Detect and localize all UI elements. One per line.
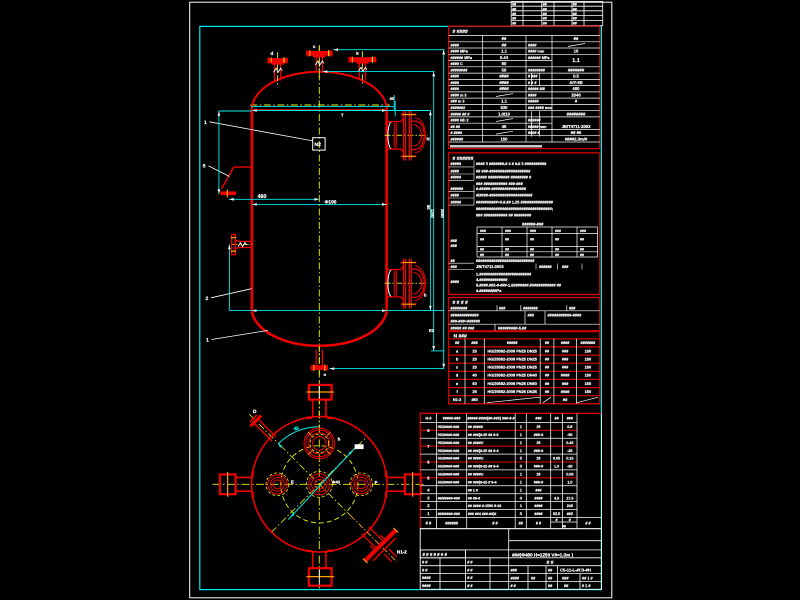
svg-text:## ####U: ## ####U [468,473,484,477]
svg-text:# # # # # # #: # # # # # # # [423,552,448,557]
svg-text:0.45: 0.45 [566,441,573,445]
svg-text:# #: # # [422,567,428,572]
svg-text:45: 45 [294,426,300,432]
svg-text:o: o [324,372,327,377]
svg-text:###: ### [511,569,518,573]
svg-text:0.15: 0.15 [566,457,573,461]
svg-text:##: ## [573,12,577,16]
svg-text:## #### #-1580 9-18: ## #### #-1580 9-18 [468,504,501,508]
svg-text:##: ## [543,7,547,11]
svg-text:##### ## #: ##### ## # [451,112,471,116]
svg-text:925: 925 [501,105,509,110]
svg-text:HG/####-###: HG/####-### [438,473,460,477]
svg-text:##: ## [555,253,559,257]
svg-text:###: ### [555,229,561,233]
svg-text:######: ###### [451,187,465,191]
svg-text:###: ### [451,239,458,243]
svg-text:50: 50 [502,67,507,72]
svg-text:### ########### ## ########: ### ########### ## ######## [476,213,532,218]
svg-text:##############################: ########################################… [450,145,542,149]
svg-text:######-###: ######-### [522,222,544,227]
svg-text:#######: ####### [568,67,585,72]
svg-text:HG/####-###: HG/####-### [438,480,460,484]
svg-text:#### MPa: #### MPa [451,50,469,54]
svg-text:####: #### [422,583,431,588]
svg-text:###: ### [451,265,458,269]
svg-text:d: d [271,51,274,56]
svg-text:N1-2: N1-2 [453,397,462,402]
svg-text:##: ## [580,253,584,257]
svg-text:1.########################: 1.######################## [476,272,532,277]
svg-text:#: # [556,518,558,522]
svg-text:###: ### [569,307,576,311]
svg-text:###-#: ###-# [534,449,543,453]
svg-text:####: #### [451,193,460,197]
svg-text:1.0: 1.0 [567,480,572,484]
svg-text:150: 150 [501,136,509,141]
svg-text:# #: # # [467,567,473,572]
svg-text:## ##: ## ## [451,125,461,129]
svg-text:# #: # # [467,559,473,564]
svg-text:#### 3 #######.# 4 # #.# 3 ###: #### 3 #######.# 4 # #.# 3 ########## [476,161,547,166]
svg-text:# ####: # #### [451,131,464,135]
svg-text:##: ## [505,238,509,242]
svg-text:JB/T4711-2003: JB/T4711-2003 [476,264,504,269]
svg-text:1200: 1200 [430,209,435,219]
svg-text:## #####: ## ##### [468,425,483,429]
svg-text:## ###[#-25 ## 9-6: ## ###[#-25 ## 9-6 [468,433,499,437]
svg-text:C5-11-L-#C3-#H: C5-11-L-#C3-#H [560,568,591,573]
svg-text:# # # #: # # # # [453,300,469,306]
svg-text:##: ## [480,248,484,252]
svg-text:##: ## [580,238,584,242]
svg-text:###: ### [562,365,569,370]
svg-text:#####: ##### [451,200,462,204]
svg-text:# #: # # [547,560,554,566]
svg-text:HG/20592-2009 PN25 DN25: HG/20592-2009 PN25 DN25 [487,348,537,353]
svg-text:460: 460 [258,194,267,200]
svg-text:150: 150 [585,365,592,370]
svg-text:####: #### [534,504,542,508]
svg-text:####: #### [422,575,431,580]
svg-text:##: ## [573,3,577,7]
svg-text:HG/####-###: HG/####-### [438,425,460,429]
svg-text:### ##4 ###-##)#: ### ##4 ###-##)# [468,512,496,516]
svg-text:###-###+######: ###-###+###### [451,319,481,324]
svg-text:## ####U: ## ####U [468,457,484,461]
svg-text:#### mm: #### mm [528,50,545,54]
svg-text:150: 150 [585,381,592,386]
svg-text:#########-5.##: #########-5.## [498,326,527,331]
svg-text:##: ## [543,3,547,7]
svg-text:####: #### [561,341,570,345]
svg-text:###: ### [580,229,586,233]
svg-text:##: ## [512,22,516,26]
svg-text:# #: # # [467,583,473,588]
svg-text:20: 20 [536,473,540,477]
svg-text:E2: E2 [429,328,435,333]
svg-text:# #: # # [536,522,542,526]
svg-text:##### ########## ######## #: ##### ########## ######## # [476,175,532,180]
svg-text:###: ### [530,229,536,233]
svg-text:HG/20592-2009 PN25 DN25: HG/20592-2009 PN25 DN25 [487,365,537,370]
svg-text:# #: # # [467,575,473,580]
svg-text:######2: ######2 [451,106,466,110]
svg-text:####: #### [534,512,542,516]
svg-text:##: ## [502,36,507,41]
svg-text:2040: 2040 [571,93,581,98]
svg-text:45: 45 [502,124,507,129]
svg-text:HG/####-###: HG/####-### [438,465,460,469]
svg-text:###### MPa: ###### MPa [528,56,550,60]
svg-text:##### ## ###: ##### ## ### [451,326,476,331]
svg-text:2060: 2060 [440,209,445,219]
svg-text:0.44: 0.44 [500,55,509,60]
svg-text:########: ######## [528,68,546,72]
svg-text:# #: # # [511,584,517,588]
svg-text:#### m 3: #### m 3 [451,94,467,98]
svg-text:c: c [313,44,316,49]
svg-text:## ###[#-25 ## 9-4: ## ###[#-25 ## 9-4 [468,449,499,453]
svg-text:40: 40 [390,96,395,101]
svg-text:##: ## [573,17,577,21]
svg-text:# ###: # ### [528,75,538,79]
svg-text:b: b [338,437,341,442]
svg-text:###: ### [535,488,541,492]
svg-text:##: ## [543,17,547,21]
svg-text:Φ40: Φ40 [332,479,341,484]
svg-text:###: ### [528,314,535,318]
svg-text:##: ## [580,248,584,252]
svg-text:4.5: 4.5 [554,496,559,500]
svg-text:###: ### [562,575,569,580]
svg-text:150: 150 [585,348,592,353]
svg-text:N2: N2 [315,142,322,148]
svg-text:#.#####-################: #.#####-################ [476,186,527,191]
svg-text:####: #### [499,80,509,85]
svg-text:5: 5 [203,164,206,170]
svg-text:# #: # # [585,522,591,526]
svg-text:###: ### [535,417,541,421]
svg-text:#####-####[##-##3] ###-#-#: #####-####[##-##3] ###-#-# [467,417,514,421]
svg-text:D: D [253,409,257,415]
svg-text:###: ### [562,348,569,353]
svg-text:########: ######## [451,68,469,72]
svg-text:### m 3: ### m 3 [451,100,465,104]
svg-text:150: 150 [585,389,592,394]
svg-text:####: #### [451,87,460,91]
svg-text:1.0: 1.0 [554,465,559,469]
svg-text:##: ## [555,238,559,242]
svg-text:## ####U: ## ####U [468,441,484,445]
svg-text:N1-2: N1-2 [397,550,407,555]
svg-text:N-3: N-3 [425,417,431,421]
svg-text:#/####-####################: #/####-#################### [476,192,533,197]
svg-text:####: #### [528,43,537,47]
svg-text:## 1 #: ## 1 # [468,488,478,492]
svg-text:##/#####-###: ##/#####-### [438,512,460,516]
svg-text:######: ###### [451,137,465,141]
svg-text:40: 40 [472,373,476,378]
svg-text:240: 240 [567,504,573,508]
svg-text:###: ### [567,417,573,421]
svg-text:# ####: # #### [453,29,469,35]
svg-text:## ##-#: ## ##-# [468,496,480,500]
svg-text:## ###[#-25 # 9-4: ## ###[#-25 # 9-4 [468,480,497,484]
svg-text:##### #/#: ##### #/# [528,87,546,91]
svg-text:150: 150 [585,373,592,378]
svg-text:###: ### [480,229,486,233]
svg-text:b: b [424,293,427,298]
svg-text:### #### mm: ### #### mm [528,106,552,110]
svg-text:# #: # # [492,521,498,526]
svg-text:400: 400 [573,86,581,91]
svg-text:##: ## [505,248,509,252]
svg-text:######: ###### [539,265,553,269]
svg-text:HG/20592-2009 PN25 DN25: HG/20592-2009 PN25 DN25 [487,356,537,361]
svg-text:#### #/h 2: #### #/h 2 [451,119,469,123]
svg-text:20: 20 [536,457,540,461]
svg-text:-20: -20 [567,449,572,453]
svg-text:5.####.##2-#-###-1.5#######.##: 5.####.##2-#-###-1.5#######.############… [476,283,562,288]
svg-text:###: ### [451,244,458,248]
svg-text:########: ######## [567,111,586,116]
svg-text:E: E [291,479,294,484]
svg-text:##: ## [573,22,577,26]
svg-text:AIY-5E: AIY-5E [569,80,582,85]
svg-text:0.8: 0.8 [567,425,572,429]
svg-text:1: 1 [204,120,207,126]
svg-text:###(Φ480 H=1250 V#=1.0m ): ###(Φ480 H=1250 V#=1.0m ) [512,552,573,557]
svg-text:####: #### [451,280,460,284]
svg-text:##: ## [512,3,516,7]
svg-text:HG/####-###: HG/####-### [438,441,460,445]
svg-text:##2: ##2 [567,512,573,516]
svg-text:##: ## [543,22,547,26]
svg-text:# #: # # [422,559,428,564]
svg-text:#### C: #### C [451,62,464,66]
svg-text:10: 10 [574,49,579,54]
svg-text:###: ### [499,307,506,311]
svg-text:0.05: 0.05 [566,473,573,477]
svg-text:##: ## [512,7,516,11]
svg-text:HG/20592-2009 PN25 DN25: HG/20592-2009 PN25 DN25 [487,389,537,394]
svg-text:# 1 #: # 1 # [582,584,591,588]
svg-text:## ###-###################: ## ###-################### [476,168,531,173]
svg-text:450: 450 [471,397,478,402]
svg-text:##: ## [505,253,509,257]
svg-text:##: ## [573,7,577,11]
svg-text:4.#############: 4.############# [476,277,508,282]
svg-text:####: #### [528,94,537,98]
svg-text:##: ## [574,36,579,41]
svg-text:1.1: 1.1 [501,49,507,54]
svg-text:##############################: ###################################; [476,206,553,211]
svg-text:HG/####-###: HG/####-### [438,433,460,437]
svg-text:##: ## [480,253,484,257]
svg-text:#####: ##### [451,176,462,180]
svg-text:###: ### [471,341,478,345]
svg-text:####2.3m/#: ####2.3m/# [565,136,588,141]
svg-text:N: N [427,137,430,142]
svg-text:# ######: # ###### [453,156,474,162]
svg-text:####: #### [534,496,542,500]
svg-text:## 1 #: ## 1 # [582,576,593,580]
svg-text:###: ### [505,229,511,233]
svg-text:4.######/MPa: 4.######/MPa [476,288,502,293]
svg-text:##: ## [530,248,534,252]
svg-text:##### mm: ##### mm [528,125,547,129]
svg-text:20: 20 [536,425,540,429]
svg-text:######: ###### [445,522,459,526]
svg-text:F: F [375,480,378,485]
svg-text:####: #### [451,75,460,79]
svg-text:##: ## [555,417,559,421]
svg-text:####: #### [511,576,520,580]
svg-text:##: ## [502,42,507,47]
svg-text:##: ## [480,238,484,242]
svg-text:1.1: 1.1 [501,99,507,104]
svg-text:a: a [356,51,359,56]
svg-text:###### MPa: ###### MPa [451,56,473,60]
svg-text:HG/20592-2009 PN25 DN40: HG/20592-2009 PN25 DN40 [487,373,537,378]
svg-text:#####: ##### [528,100,539,104]
svg-text:## ##: ## ## [571,130,582,135]
svg-text:HG/####-###: HG/####-### [438,449,460,453]
svg-text:##########+#.#.## 1.25 #######: ##########+#.#.## 1.25 ############### [476,199,554,204]
svg-text:52.5: 52.5 [553,512,560,516]
svg-text:HG/####-###: HG/####-### [438,457,460,461]
svg-text:2: 2 [206,296,209,302]
svg-text:####: #### [451,43,460,47]
svg-text:17.5: 17.5 [566,496,573,500]
svg-text:## ###[#-25 ## 9-4: ## ###[#-25 ## 9-4 [468,465,499,469]
svg-text:####: #### [561,373,570,378]
svg-text:#####: ##### [451,162,462,166]
svg-text:# # #: # # # [528,81,537,85]
svg-text:1: 1 [206,338,209,344]
svg-text:#####: ##### [507,341,518,345]
svg-text:########: ######## [451,307,469,311]
svg-text:##: ## [562,524,566,528]
svg-text:#####-###: #####-### [443,417,461,421]
svg-text:###-#: ###-# [534,433,543,437]
svg-text:##: ## [543,12,547,16]
svg-text:####: #### [561,389,570,394]
svg-text:####: #### [499,86,509,91]
svg-text:1.1: 1.1 [572,58,580,64]
svg-text:0.05: 0.05 [553,457,560,461]
svg-text:Φ100: Φ100 [325,199,337,205]
svg-text:# #: # # [426,521,432,526]
svg-text:####: #### [451,169,460,173]
svg-text:#############: ############# [451,313,480,318]
svg-text:##: ## [512,17,516,21]
svg-text:###########################: ########################### [476,258,535,263]
svg-text:###: ### [562,381,569,386]
svg-text:#: # [569,518,571,522]
svg-text:-50: -50 [567,433,572,437]
svg-text:#######: ####### [581,341,597,345]
svg-text:#### #: #### # [528,131,541,135]
svg-text:##: ## [512,12,516,16]
svg-text:###-#: ###-# [534,480,543,484]
svg-text:HG/20592-2009 PN25 DN50: HG/20592-2009 PN25 DN50 [487,381,537,386]
svg-text:##: ## [530,238,534,242]
svg-text:###: ### [562,265,569,269]
svg-text:####: #### [499,74,509,79]
svg-text:JB/T4711-2003: JB/T4711-2003 [562,124,592,129]
svg-text:##: ## [555,248,559,252]
svg-text:####: #### [451,81,460,85]
svg-text:###-#: ###-# [534,465,543,469]
svg-text:80: 80 [502,61,507,66]
svg-text:-50: -50 [567,465,572,469]
svg-text:###########-####: ###########-#### [548,313,583,318]
svg-text:###: ### [562,356,569,361]
svg-text:20: 20 [536,441,540,445]
svg-text:50: 50 [472,381,476,386]
svg-text:0.5: 0.5 [573,74,579,79]
svg-text:#######: ####### [523,307,539,311]
svg-text:1.0/10: 1.0/10 [498,111,510,116]
svg-text:150: 150 [585,356,592,361]
svg-text:##: ## [530,253,534,257]
svg-text:##/#####-###: ##/#####-### [438,496,460,500]
